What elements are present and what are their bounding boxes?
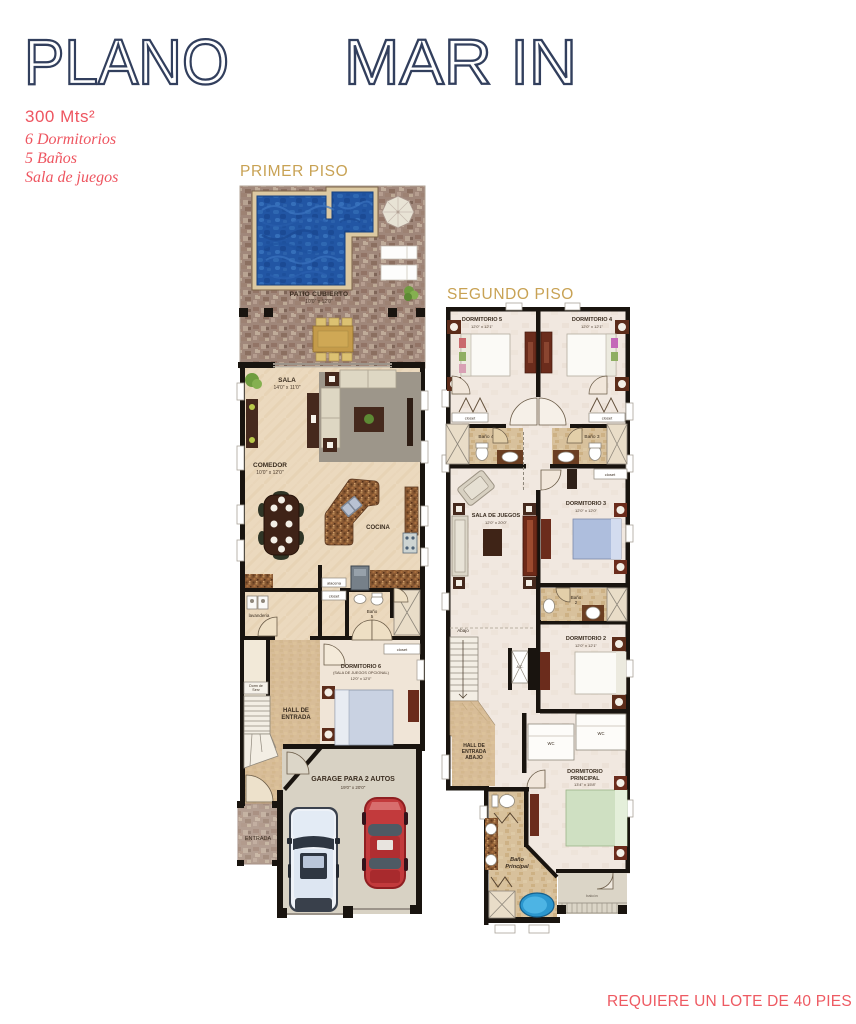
svg-text:DORMITORIO 3: DORMITORIO 3 bbox=[566, 501, 606, 507]
svg-text:DORMITORIO 6: DORMITORIO 6 bbox=[341, 664, 381, 670]
svg-text:GARAGE PARA 2 AUTOS: GARAGE PARA 2 AUTOS bbox=[311, 776, 395, 783]
svg-text:lavanderia: lavanderia bbox=[249, 613, 270, 618]
svg-text:closet: closet bbox=[329, 594, 340, 599]
svg-text:DORMITORIO: DORMITORIO bbox=[567, 769, 603, 775]
svg-text:WC: WC bbox=[548, 741, 555, 746]
svg-text:closet: closet bbox=[465, 416, 476, 421]
svg-text:balcón: balcón bbox=[586, 893, 598, 898]
svg-text:HALL DE: HALL DE bbox=[283, 708, 309, 714]
svg-text:ABAJO: ABAJO bbox=[465, 755, 483, 761]
svg-text:12'0" x 12'1": 12'0" x 12'1" bbox=[575, 643, 598, 648]
svg-text:closet: closet bbox=[602, 416, 613, 421]
svg-text:13'4" x 15'8": 13'4" x 15'8" bbox=[574, 782, 597, 787]
svg-text:(SALA DE JUEGOS OPCIONAL): (SALA DE JUEGOS OPCIONAL) bbox=[333, 671, 389, 675]
svg-text:Principal: Principal bbox=[505, 864, 529, 870]
svg-text:DORMITORIO 4: DORMITORIO 4 bbox=[572, 317, 613, 323]
svg-text:14'0" x 11'0": 14'0" x 11'0" bbox=[273, 385, 300, 391]
svg-text:COMEDOR: COMEDOR bbox=[253, 462, 287, 469]
svg-text:PATIO CUBIERTO: PATIO CUBIERTO bbox=[290, 291, 349, 298]
svg-text:12'0" x 12'1": 12'0" x 12'1" bbox=[471, 324, 494, 329]
svg-text:A.C.: A.C. bbox=[517, 665, 524, 669]
svg-text:10'0" x 12'0": 10'0" x 12'0" bbox=[305, 299, 333, 305]
svg-text:19'0" x 20'0": 19'0" x 20'0" bbox=[341, 785, 366, 790]
svg-text:DORMITORIO 2: DORMITORIO 2 bbox=[566, 636, 606, 642]
svg-text:SALA: SALA bbox=[278, 377, 296, 384]
svg-text:Baño 3: Baño 3 bbox=[584, 434, 600, 440]
svg-text:COCINA: COCINA bbox=[366, 525, 390, 531]
svg-text:SALA DE JUEGOS: SALA DE JUEGOS bbox=[472, 513, 521, 519]
svg-text:12'0" x 12'0": 12'0" x 12'0" bbox=[351, 677, 372, 681]
svg-text:closet: closet bbox=[605, 472, 616, 477]
svg-text:12'0" x 20'0": 12'0" x 20'0" bbox=[485, 520, 508, 525]
svg-text:10'0" x 12'0": 10'0" x 12'0" bbox=[256, 470, 284, 476]
svg-text:WC: WC bbox=[598, 731, 605, 736]
svg-text:DORMITORIO 5: DORMITORIO 5 bbox=[462, 317, 502, 323]
svg-text:alacena: alacena bbox=[327, 581, 342, 586]
svg-text:ENTRADA: ENTRADA bbox=[281, 715, 311, 721]
svg-text:PLANO: PLANO bbox=[24, 32, 229, 94]
svg-text:MAR IN: MAR IN bbox=[344, 32, 577, 94]
svg-text:12'0" x 12'1": 12'0" x 12'1" bbox=[581, 324, 604, 329]
svg-text:Baño 4: Baño 4 bbox=[478, 434, 494, 440]
svg-text:Baño: Baño bbox=[510, 857, 524, 863]
svg-text:12'0" x 12'0": 12'0" x 12'0" bbox=[575, 508, 598, 513]
svg-text:closet: closet bbox=[397, 647, 408, 652]
svg-text:ENTRADA: ENTRADA bbox=[245, 836, 272, 842]
svg-text:Serv: Serv bbox=[252, 688, 260, 692]
svg-text:Abajo: Abajo bbox=[457, 628, 469, 633]
